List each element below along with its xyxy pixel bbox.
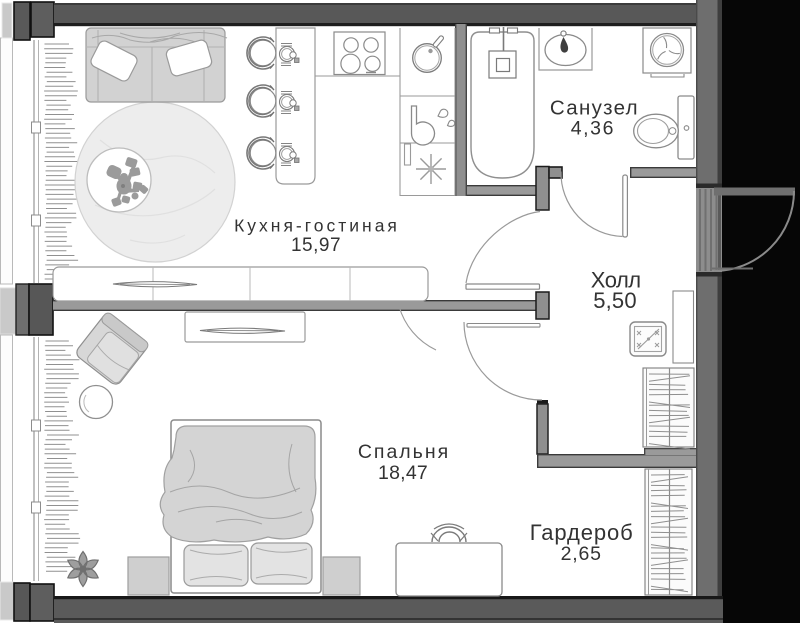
svg-text:Спальня: Спальня	[358, 441, 450, 463]
svg-text:4,36: 4,36	[571, 118, 615, 140]
svg-text:15,97: 15,97	[291, 235, 341, 256]
svg-text:Санузел: Санузел	[550, 96, 639, 119]
svg-text:Кухня-гостиная: Кухня-гостиная	[234, 215, 400, 235]
svg-text:Гардероб: Гардероб	[530, 520, 634, 545]
svg-text:2,65: 2,65	[561, 543, 602, 565]
svg-text:5,50: 5,50	[593, 288, 637, 313]
svg-text:18,47: 18,47	[378, 462, 428, 484]
